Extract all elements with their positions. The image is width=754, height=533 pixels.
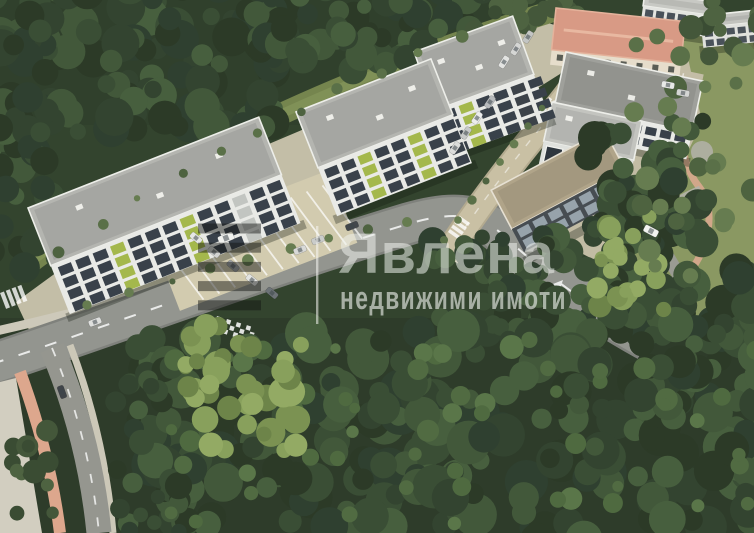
logo-stripe xyxy=(198,281,261,291)
aerial-render: Явлена недвижими имоти xyxy=(0,0,754,533)
logo-stripe xyxy=(198,300,261,310)
watermark-brand: Явлена xyxy=(338,222,555,286)
logo-stripe xyxy=(198,224,261,234)
logo-stripe xyxy=(198,262,261,272)
scene-canvas: Явлена недвижими имоти xyxy=(0,0,754,533)
watermark-tagline: недвижими имоти xyxy=(340,280,567,316)
logo-stripe xyxy=(198,243,261,253)
watermark-divider-line xyxy=(316,226,318,324)
